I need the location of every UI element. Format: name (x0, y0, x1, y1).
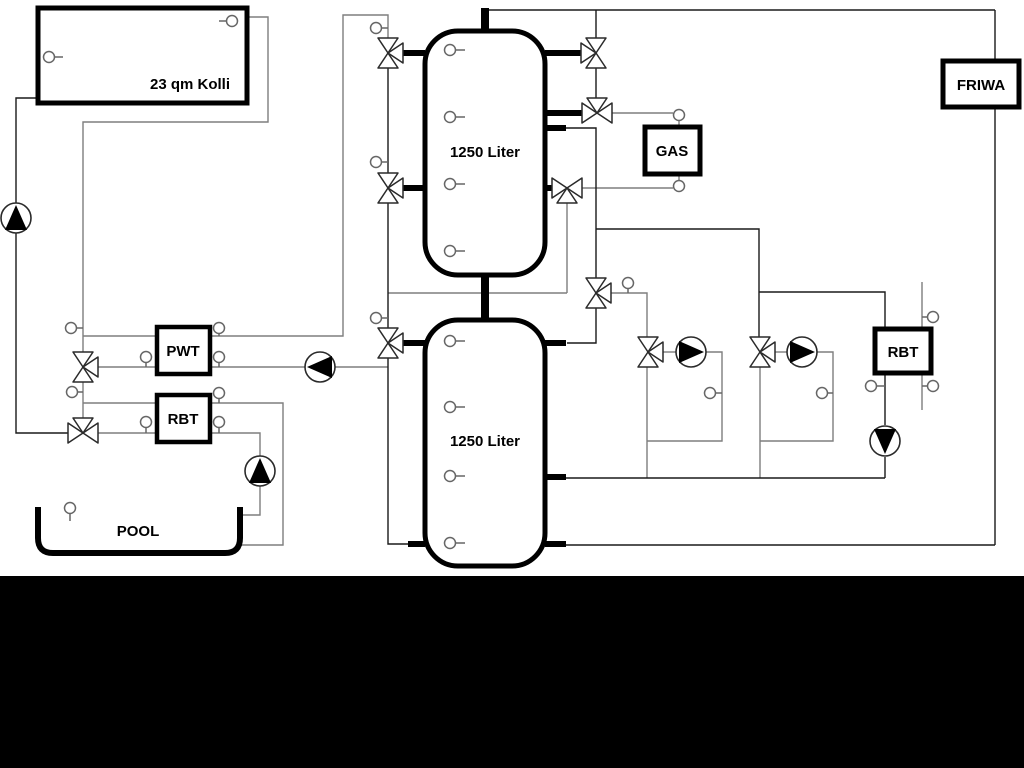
pool-pump-icon (245, 456, 275, 486)
heating-circuit-1-pump-icon (676, 337, 706, 367)
pool-label: POOL (117, 523, 160, 540)
buffer-tank-2: 1250 Liter (425, 320, 545, 566)
pool-branch-valve-icon (68, 418, 98, 443)
rbt-right-label: RBT (888, 344, 919, 361)
pwt-label: PWT (166, 343, 199, 360)
pwt-branch-valve-icon (73, 352, 98, 382)
rbt-pool-heat-exchanger: RBT (157, 395, 210, 442)
tank1-right-top-valve-icon (581, 38, 606, 68)
heating-circuit-2-mixing-valve-icon (750, 337, 775, 367)
tank2-right-top-valve-icon (586, 278, 611, 308)
heating-circuit-2-pump-icon (787, 337, 817, 367)
rbt-left-label: RBT (168, 411, 199, 428)
solar-pump-icon (1, 203, 31, 233)
gas-supply-valve-icon (582, 98, 612, 123)
pool-sensor-icon (65, 503, 76, 522)
gas-boiler: GAS (645, 110, 700, 192)
friwa-station: FRIWA (943, 61, 1019, 107)
tank1-label: 1250 Liter (450, 144, 520, 161)
tank1-left-mid-valve-icon (378, 173, 403, 203)
rbt-right-heat-exchanger: RBT (875, 329, 931, 373)
tank1-left-top-valve-icon (378, 38, 403, 68)
pool: POOL (38, 503, 240, 554)
heating-circuit-1-mixing-valve-icon (638, 337, 663, 367)
friwa-label: FRIWA (957, 77, 1005, 94)
pwt-heat-exchanger: PWT (157, 327, 210, 374)
buffer-tank-1: 1250 Liter (425, 31, 545, 275)
schematic-page: 23 qm Kolli 1250 Liter 1250 Liter GAS (0, 0, 1024, 768)
letterbox-bar (0, 576, 1024, 768)
rbt-circuit-pump-icon (870, 426, 900, 456)
tank2-label: 1250 Liter (450, 433, 520, 450)
gas-label: GAS (656, 143, 689, 160)
collector-label: 23 qm Kolli (150, 76, 230, 93)
gas-return-valve-icon (552, 178, 582, 203)
tank2-left-top-valve-icon (378, 328, 403, 358)
solar-collector: 23 qm Kolli (38, 8, 247, 103)
buffer-charge-pump-icon (305, 352, 335, 382)
